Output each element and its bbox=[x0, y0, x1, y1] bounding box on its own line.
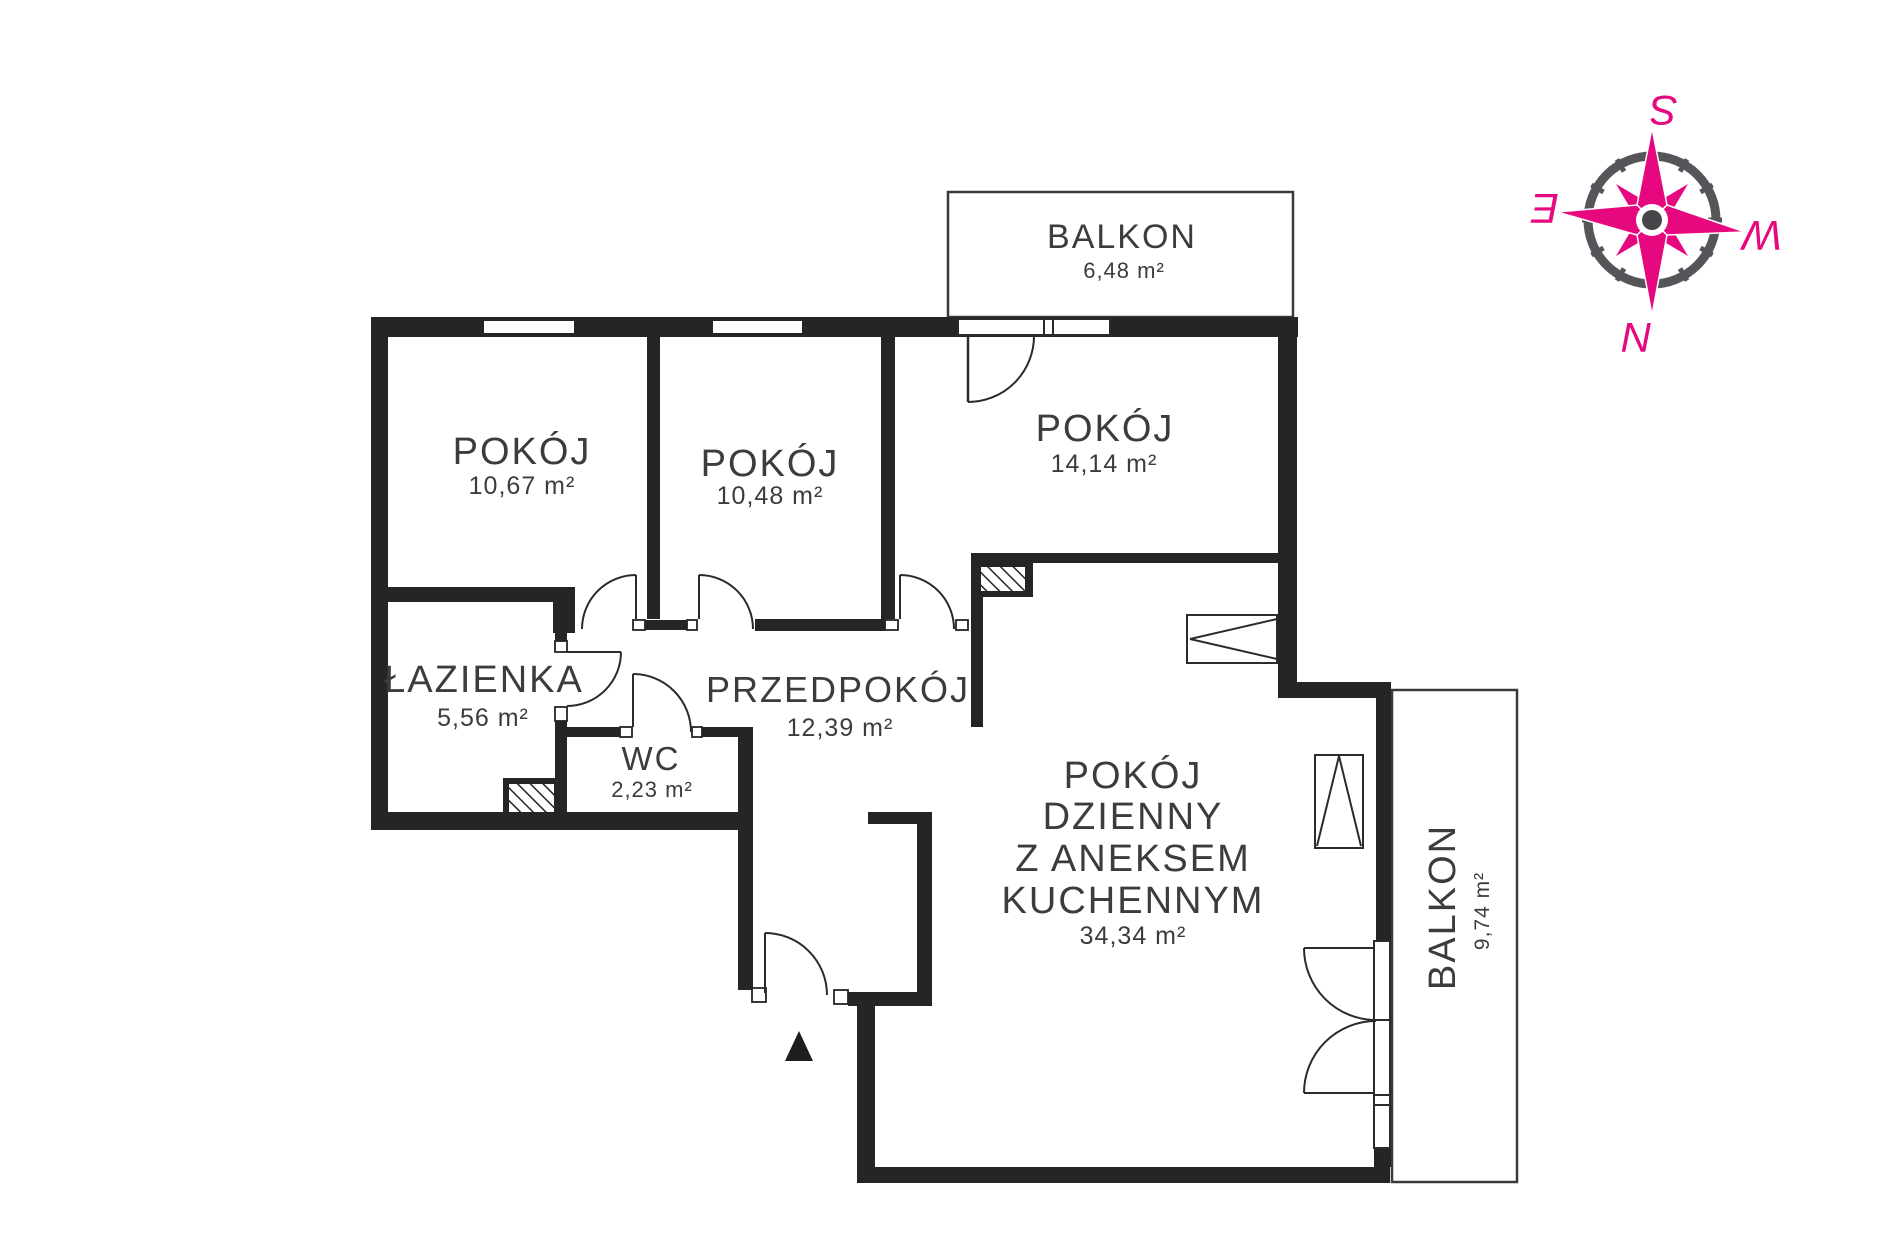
compass-letter-east: E bbox=[1530, 185, 1559, 232]
room-label-przedpokoj: PRZEDPOKÓJ bbox=[706, 669, 970, 710]
shaft-bathroom bbox=[503, 778, 560, 817]
balcony-door-right bbox=[1304, 941, 1390, 1148]
room-area-balkon-top: 6,48 m² bbox=[1083, 258, 1165, 283]
room-label-pokoj-3: POKÓJ bbox=[1036, 407, 1175, 450]
room-label-living-1: POKÓJ bbox=[1064, 754, 1203, 797]
room-label-pokoj-1: POKÓJ bbox=[453, 430, 592, 473]
balcony-door-top bbox=[958, 319, 1110, 402]
room-area-pokoj-3: 14,14 m² bbox=[1051, 450, 1158, 478]
room-area-lazienka: 5,56 m² bbox=[437, 704, 529, 732]
compass-letter-south: S bbox=[1650, 87, 1678, 134]
room-area-living: 34,34 m² bbox=[1080, 922, 1187, 950]
window-room1 bbox=[483, 320, 575, 334]
window-room2 bbox=[712, 320, 803, 334]
room-label-balkon-right: BALKON bbox=[1422, 824, 1464, 990]
shaft-living bbox=[973, 563, 1033, 597]
room-area-pokoj-1: 10,67 m² bbox=[469, 472, 576, 500]
floor-plan-svg: POKÓJ 10,67 m² POKÓJ 10,48 m² POKÓJ 14,1… bbox=[0, 0, 1877, 1252]
room-label-living-3: Z ANEKSEM bbox=[1015, 838, 1251, 880]
compass: S W N E bbox=[1530, 87, 1783, 361]
room-label-pokoj-2: POKÓJ bbox=[701, 442, 840, 485]
floor-plan-page: POKÓJ 10,67 m² POKÓJ 10,48 m² POKÓJ 14,1… bbox=[0, 0, 1877, 1252]
entrance-arrow-icon bbox=[785, 1031, 813, 1061]
room-label-balkon-top: BALKON bbox=[1047, 218, 1197, 256]
room-area-pokoj-2: 10,48 m² bbox=[717, 482, 824, 510]
room-label-wc: WC bbox=[622, 740, 681, 777]
room-label-living-2: DZIENNY bbox=[1043, 796, 1224, 838]
room-area-wc: 2,23 m² bbox=[611, 777, 693, 802]
room-label-living-4: KUCHENNYM bbox=[1002, 880, 1265, 922]
wardrobe-symbol bbox=[1187, 615, 1277, 663]
compass-letter-west: W bbox=[1740, 212, 1783, 259]
room-area-balkon-right: 9,74 m² bbox=[1471, 872, 1494, 950]
room-label-lazienka: ŁAZIENKA bbox=[384, 659, 584, 701]
cabinet-symbol bbox=[1315, 755, 1363, 848]
room-area-przedpokoj: 12,39 m² bbox=[787, 714, 894, 742]
compass-letter-north: N bbox=[1621, 314, 1652, 361]
